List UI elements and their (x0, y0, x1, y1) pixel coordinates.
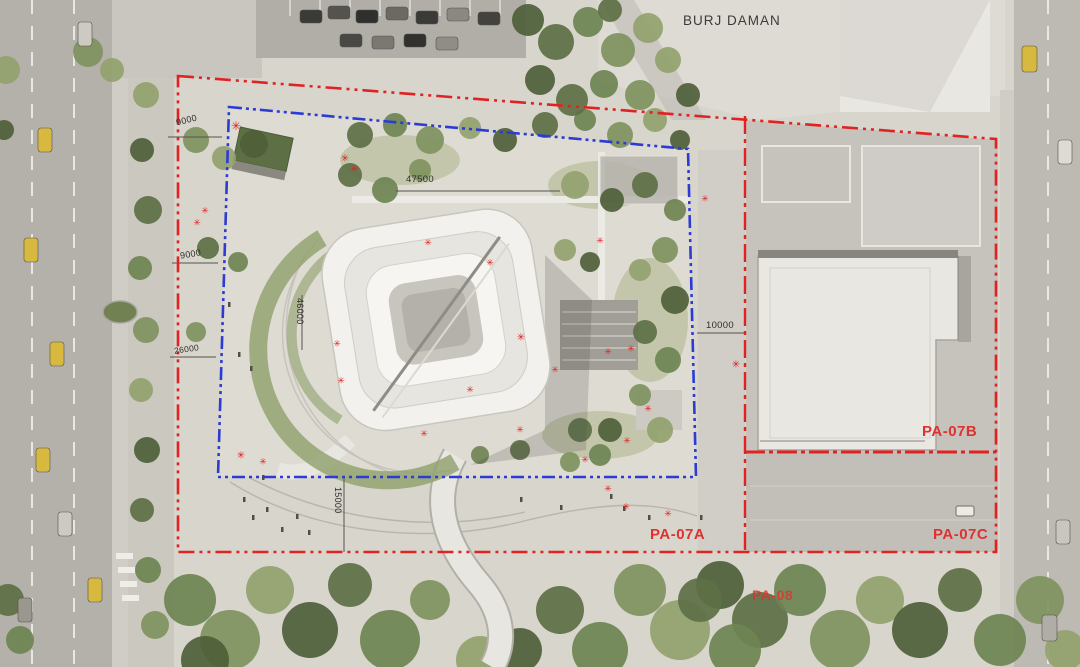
person-icon (700, 515, 703, 520)
tree-icon (525, 65, 555, 95)
car-icon (1022, 46, 1037, 72)
tree-icon (647, 417, 673, 443)
tree-icon (598, 418, 622, 442)
site-marker-icon: ✳ (486, 257, 494, 267)
car-icon (24, 238, 38, 262)
car-icon (1058, 140, 1072, 164)
site-marker-icon: ✳ (623, 435, 631, 445)
site-marker-icon: ✳ (604, 346, 612, 356)
tree-icon (633, 13, 663, 43)
person-icon (243, 497, 246, 502)
site-marker-icon: ✳ (664, 508, 672, 518)
tree-icon (416, 126, 444, 154)
car-icon (1042, 615, 1057, 641)
plot-pa07b (746, 120, 998, 452)
person-icon (228, 302, 231, 307)
tree-icon (130, 498, 154, 522)
tree-icon (128, 256, 152, 280)
tree-icon (328, 563, 372, 607)
site-marker-icon: ✳ (420, 428, 428, 438)
person-icon (520, 497, 523, 502)
tree-icon (282, 602, 338, 658)
tree-icon (410, 580, 450, 620)
site-marker-icon: ✳ (644, 403, 652, 413)
person-icon (238, 352, 241, 357)
tree-icon (186, 322, 206, 342)
tree-icon (135, 557, 161, 583)
tree-icon (164, 574, 216, 626)
person-icon (250, 366, 253, 371)
tree-icon (643, 108, 667, 132)
site-marker-icon: ✳ (604, 483, 612, 493)
tree-icon (538, 24, 574, 60)
tree-icon (536, 586, 584, 634)
car-icon (356, 10, 378, 23)
site-marker-icon: ✳ (337, 375, 345, 385)
car-icon (1056, 520, 1070, 544)
tree-icon (560, 452, 580, 472)
person-icon (610, 494, 613, 499)
site-marker-icon: ✳ (259, 456, 267, 466)
tree-icon (614, 564, 666, 616)
burj-daman-label: BURJ DAMAN (683, 14, 781, 28)
tree-icon (661, 286, 689, 314)
tree-icon (240, 130, 268, 158)
tree-icon (600, 188, 624, 212)
tree-icon (633, 320, 657, 344)
car-icon (300, 10, 322, 23)
tree-icon (676, 83, 700, 107)
tree-icon (141, 611, 169, 639)
tree-icon (246, 566, 294, 614)
tree-icon (129, 378, 153, 402)
tree-icon (580, 252, 600, 272)
car-icon (372, 36, 394, 49)
site-marker-icon: ✳ (466, 384, 474, 394)
tree-icon (625, 80, 655, 110)
tree-icon (100, 58, 124, 82)
tree-icon (589, 444, 611, 466)
site-marker-icon: ✳ (424, 237, 432, 247)
site-marker-icon: ✳ (622, 501, 630, 511)
dimension-right-setback: 10000 (706, 321, 734, 331)
top-left-paving (112, 0, 262, 78)
person-icon (266, 507, 269, 512)
site-marker-icon: ✳ (341, 154, 349, 165)
car-icon (416, 11, 438, 24)
tree-icon (134, 437, 160, 463)
tree-icon (590, 70, 618, 98)
car-icon (478, 12, 500, 25)
site-marker-icon: ✳ (516, 424, 524, 434)
tree-icon (632, 172, 658, 198)
tree-icon (664, 199, 686, 221)
tree-icon (133, 317, 159, 343)
plot-label-pa07b: PA-07B (922, 424, 977, 439)
car-icon (447, 8, 469, 21)
tree-icon (512, 4, 544, 36)
tree-icon (383, 113, 407, 137)
tree-icon (493, 128, 517, 152)
site-marker-icon: ✳ (596, 235, 604, 245)
car-icon (78, 22, 92, 46)
tree-icon (655, 47, 681, 73)
person-icon (296, 514, 299, 519)
site-marker-icon: ✳ (193, 217, 201, 227)
dimension-top-center: 47500 (406, 175, 434, 185)
tree-icon (678, 578, 722, 622)
car-icon (36, 448, 50, 472)
person-icon (648, 515, 651, 520)
tree-icon (6, 626, 34, 654)
parked-car (956, 506, 974, 516)
site-marker-icon: ✳ (333, 338, 341, 348)
tree-icon (212, 146, 236, 170)
dimension-building-left: 46000 (295, 298, 304, 325)
site-marker-icon: ✳ (581, 454, 589, 464)
car-icon (404, 34, 426, 47)
site-marker-icon: ✳ (627, 343, 635, 353)
right-road (1000, 0, 1080, 667)
plot-label-pa07c: PA-07C (933, 527, 988, 542)
tree-icon (554, 239, 576, 261)
dimension-bottom-setback: 15000 (333, 487, 342, 514)
tree-icon (347, 122, 373, 148)
site-marker-icon: ✳ (517, 333, 525, 344)
tree-icon (938, 568, 982, 612)
tree-icon (133, 82, 159, 108)
person-icon (560, 505, 563, 510)
tree-icon (556, 84, 588, 116)
plot-label-pa08: PA-08 (752, 588, 793, 602)
tree-icon (183, 127, 209, 153)
car-icon (38, 128, 52, 152)
tree-icon (601, 33, 635, 67)
site-marker-icon: ✳ (201, 205, 209, 215)
tree-icon (228, 252, 248, 272)
site-plan: ✳✳✳✳✳✳✳✳✳✳✳✳✳✳✳✳✳✳✳✳✳✳✳✳✳✳✳ BURJ DAMAN P… (0, 0, 1080, 667)
tree-icon (532, 112, 558, 138)
person-icon (252, 515, 255, 520)
tree-icon (629, 259, 651, 281)
person-icon (308, 530, 311, 535)
car-icon (436, 37, 458, 50)
car-icon (88, 578, 102, 602)
tree-icon (652, 237, 678, 263)
site-marker-icon: ✳ (701, 193, 709, 203)
site-marker-icon: ✳ (732, 360, 740, 371)
person-icon (281, 527, 284, 532)
tree-icon (655, 347, 681, 373)
tree-icon (134, 196, 162, 224)
tree-icon (561, 171, 589, 199)
site-marker-icon: ✳ (350, 163, 358, 173)
site-marker-icon: ✳ (231, 119, 241, 133)
tree-icon (130, 138, 154, 162)
tree-icon (607, 122, 633, 148)
car-icon (58, 512, 72, 536)
walkway-strip (698, 150, 745, 552)
car-icon (386, 7, 408, 20)
site-plan-drawing: ✳✳✳✳✳✳✳✳✳✳✳✳✳✳✳✳✳✳✳✳✳✳✳✳✳✳✳ (0, 0, 1080, 667)
tree-icon (892, 602, 948, 658)
car-icon (50, 342, 64, 366)
car-icon (328, 6, 350, 19)
plot-label-pa07a: PA-07A (650, 527, 705, 542)
tree-icon (974, 614, 1026, 666)
site-marker-icon: ✳ (237, 451, 245, 462)
car-icon (340, 34, 362, 47)
planting-bed (103, 301, 137, 323)
tree-icon (372, 177, 398, 203)
site-marker-icon: ✳ (551, 364, 559, 374)
car-icon (18, 598, 32, 622)
